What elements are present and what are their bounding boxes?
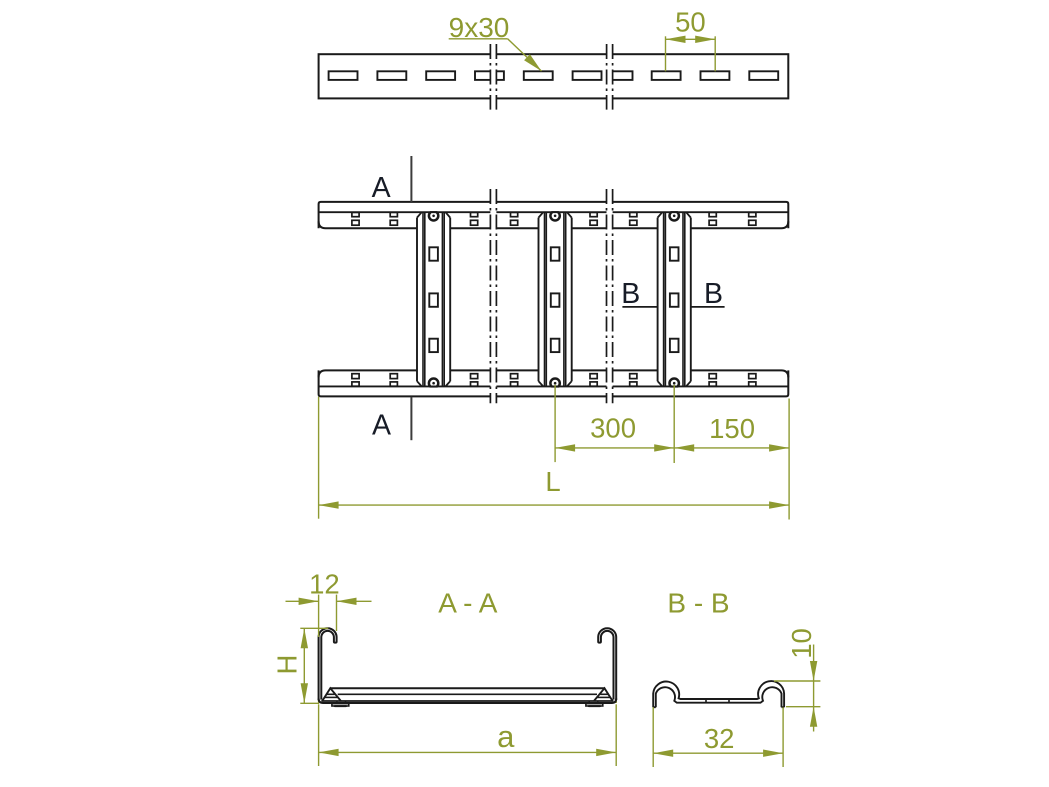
svg-text:a: a	[497, 719, 515, 754]
svg-text:300: 300	[590, 413, 636, 444]
svg-text:50: 50	[675, 7, 706, 38]
svg-text:L: L	[545, 466, 560, 497]
svg-text:B: B	[621, 278, 640, 310]
svg-text:B: B	[704, 278, 723, 310]
svg-text:A: A	[372, 172, 391, 204]
svg-text:12: 12	[309, 568, 340, 599]
svg-text:H: H	[272, 655, 303, 675]
svg-text:150: 150	[709, 413, 755, 444]
svg-text:B - B: B - B	[667, 588, 729, 619]
svg-text:A: A	[372, 410, 391, 442]
svg-text:10: 10	[786, 628, 817, 659]
svg-text:A - A: A - A	[438, 587, 497, 618]
svg-text:32: 32	[704, 723, 735, 754]
